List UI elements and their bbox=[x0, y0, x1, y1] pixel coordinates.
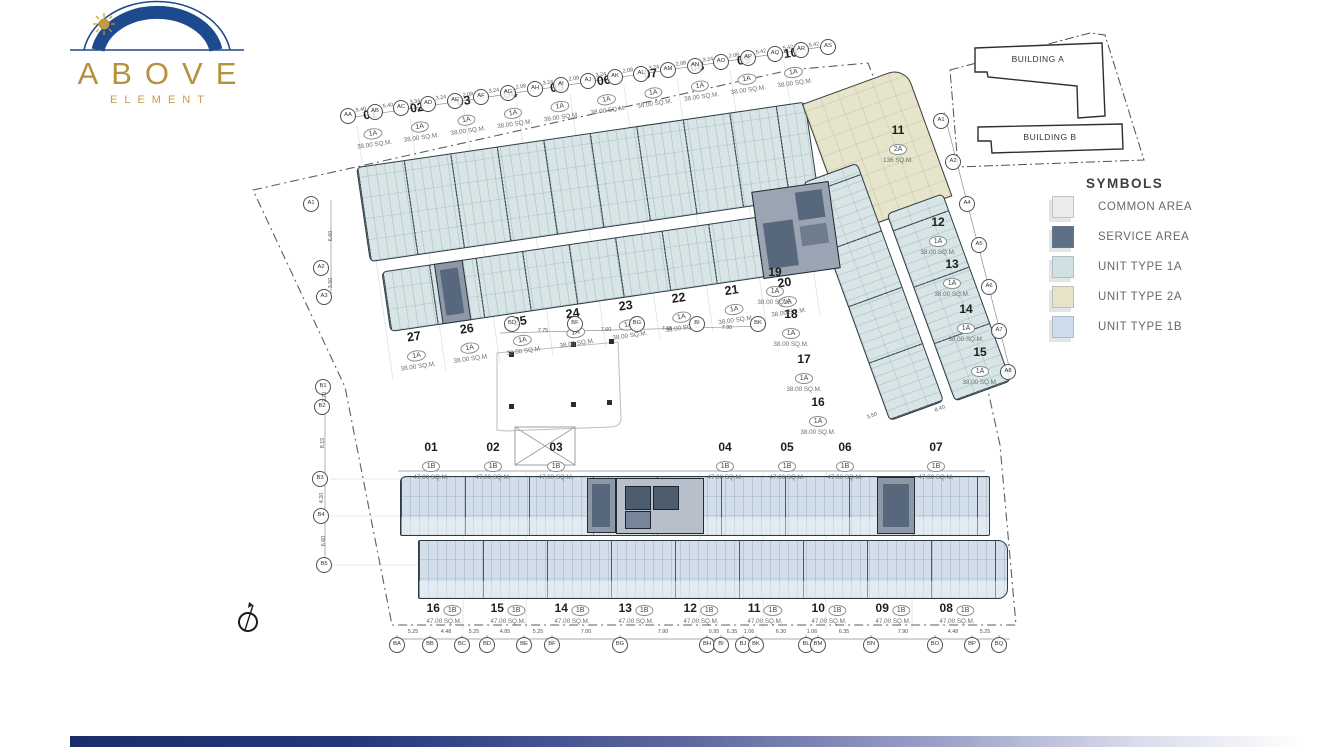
grid-bubble: BO bbox=[927, 637, 943, 653]
dimension-value: 3.50 bbox=[328, 278, 334, 289]
unit-area: 47.00 SQ.M. bbox=[467, 474, 519, 481]
dimension-value: 2.70 bbox=[322, 392, 328, 403]
grid-bubble: BA bbox=[389, 637, 405, 653]
grid-bubble: A3 bbox=[316, 289, 332, 305]
grid-bubble: AS bbox=[820, 39, 836, 55]
unit-type-badge: 1A bbox=[724, 303, 744, 317]
unit-label: 06 1B 47.00 SQ.M. bbox=[819, 441, 871, 481]
unit-label: 25 1A 38.00 SQ.M. bbox=[492, 311, 552, 366]
unit-type-badge: 1B bbox=[422, 461, 441, 472]
grid-bubble: A2 bbox=[945, 154, 961, 170]
unit-label: 19 1A 38.00 SQ.M. bbox=[749, 266, 801, 306]
dimension-value: 0.95 bbox=[709, 629, 720, 635]
legend-item-label: COMMON AREA bbox=[1098, 201, 1192, 213]
unit-number: 13 bbox=[619, 601, 632, 615]
grid-bubble: BG bbox=[612, 637, 628, 653]
dimension-value: 7.90 bbox=[722, 325, 733, 331]
unit-type-badge: 1A bbox=[410, 120, 430, 134]
unit-area: 38.00 SQ.M. bbox=[792, 429, 844, 436]
unit-label: 101B 47.00 SQ.M. bbox=[811, 599, 846, 625]
unit-number: 12 bbox=[684, 601, 697, 615]
grid-bubble: AB bbox=[367, 104, 383, 120]
grid-bubble: A5 bbox=[971, 237, 987, 253]
unit-type-badge: 1A bbox=[809, 416, 828, 427]
unit-area: 47.00 SQ.M. bbox=[811, 618, 846, 625]
unit-type-badge: 1B bbox=[716, 461, 735, 472]
unit-area: 47.00 SQ.M. bbox=[761, 474, 813, 481]
dimension-value: 4.85 bbox=[500, 629, 511, 635]
grid-bubble: A6 bbox=[981, 279, 997, 295]
unit-number: 01 bbox=[405, 441, 457, 454]
unit-area: 47.00 SQ.M. bbox=[939, 618, 974, 625]
grid-bubble: BM bbox=[810, 637, 826, 653]
unit-type-badge: 1A bbox=[929, 236, 948, 247]
stair-core bbox=[587, 478, 616, 533]
unit-label: 081B 47.00 SQ.M. bbox=[939, 599, 974, 625]
unit-label: 141B 47.00 SQ.M. bbox=[554, 599, 589, 625]
grid-bubble: BC bbox=[454, 637, 470, 653]
unit-area: 47.00 SQ.M. bbox=[426, 618, 461, 625]
grid-bubble: AR bbox=[793, 42, 809, 58]
key-plan-building-a-label: BUILDING A bbox=[1012, 54, 1065, 64]
unit-number: 16 bbox=[792, 396, 844, 409]
symbols-legend: SYMBOLS COMMON AREA SERVICE AREA UNIT TY… bbox=[1050, 176, 1280, 341]
unit-area: 38.00 SQ.M. bbox=[912, 249, 964, 256]
unit-number: 07 bbox=[910, 441, 962, 454]
unit-type-badge: 1B bbox=[836, 461, 855, 472]
legend-item-label: UNIT TYPE 2A bbox=[1098, 291, 1182, 303]
unit-label: 131B 47.00 SQ.M. bbox=[618, 599, 653, 625]
grid-bubble: AO bbox=[713, 54, 729, 70]
grid-bubble: A7 bbox=[991, 323, 1007, 339]
unit-type-badge: 1B bbox=[828, 605, 847, 616]
brand-logo: ABOVE ELEMENT bbox=[62, 0, 252, 105]
stair-core bbox=[434, 260, 472, 325]
grid-bubble: A8 bbox=[1000, 364, 1016, 380]
unit-number: 06 bbox=[819, 441, 871, 454]
grid-bubble: BG bbox=[629, 316, 645, 332]
footer-gradient-bar bbox=[70, 736, 1342, 747]
grid-bubble: AM bbox=[660, 62, 676, 78]
brand-name: ABOVE bbox=[62, 56, 252, 92]
unit-label: 18 1A 38.00 SQ.M. bbox=[765, 308, 817, 348]
grid-bubble: AK bbox=[607, 69, 623, 85]
legend-swatch-icon bbox=[1052, 196, 1074, 218]
unit-area: 47.00 SQ.M. bbox=[490, 618, 525, 625]
unit-number: 13 bbox=[926, 258, 978, 271]
unit-type-badge: 1A bbox=[957, 323, 976, 334]
unit-number: 03 bbox=[530, 441, 582, 454]
grid-bubble: BN bbox=[863, 637, 879, 653]
unit-number: 19 bbox=[749, 266, 801, 279]
legend-item-label: UNIT TYPE 1A bbox=[1098, 261, 1182, 273]
key-plan: BUILDING A BUILDING B bbox=[930, 28, 1158, 172]
unit-label: 111B 47.00 SQ.M. bbox=[747, 599, 782, 625]
unit-type-badge: 1A bbox=[782, 328, 801, 339]
unit-number: 15 bbox=[491, 601, 504, 615]
unit-type-badge: 1B bbox=[547, 461, 566, 472]
grid-bubble: AC bbox=[393, 100, 409, 116]
unit-number: 14 bbox=[555, 601, 568, 615]
dimension-value: 1.06 bbox=[807, 629, 818, 635]
unit-area: 38.00 SQ.M. bbox=[778, 386, 830, 393]
unit-type-badge: 1A bbox=[766, 286, 785, 297]
unit-type-badge: 1A bbox=[597, 93, 617, 107]
unit-type-badge: 1A bbox=[643, 86, 663, 100]
grid-bubble: BP bbox=[964, 637, 980, 653]
unit-type-badge: 2A bbox=[889, 144, 908, 155]
grid-bubble: AJ bbox=[580, 73, 596, 89]
grid-bubble: A2 bbox=[313, 260, 329, 276]
unit-area: 136 SQ.M. bbox=[872, 157, 924, 164]
legend-item: SERVICE AREA bbox=[1050, 222, 1280, 251]
legend-swatch-icon bbox=[1052, 226, 1074, 248]
grid-bubble: BB bbox=[422, 637, 438, 653]
grid-bubble: BE bbox=[516, 637, 532, 653]
unit-label: 04 1B 47.00 SQ.M. bbox=[699, 441, 751, 481]
unit-type-badge: 1A bbox=[737, 73, 757, 87]
unit-type-badge: 1B bbox=[443, 605, 462, 616]
grid-bubble: B5 bbox=[316, 557, 332, 573]
unit-label: 12 1A 38.00 SQ.M. bbox=[912, 216, 964, 256]
legend-swatch-icon bbox=[1052, 256, 1074, 278]
unit-area: 47.00 SQ.M. bbox=[618, 618, 653, 625]
unit-label: 27 1A 38.00 SQ.M. bbox=[387, 327, 447, 382]
dimension-value: 6.60 bbox=[321, 536, 327, 547]
unit-type-badge: 1B bbox=[764, 605, 783, 616]
unit-label: 15 1A 38.00 SQ.M. bbox=[954, 346, 1006, 386]
unit-area: 38.00 SQ.M. bbox=[954, 379, 1006, 386]
lower-building-bottom-bar bbox=[418, 540, 1008, 599]
dimension-value: 7.75 bbox=[538, 328, 549, 334]
key-plan-building-b-label: BUILDING B bbox=[1023, 132, 1076, 142]
unit-area: 38.00 SQ.M. bbox=[749, 299, 801, 306]
unit-type-badge: 1B bbox=[892, 605, 911, 616]
legend-items: COMMON AREA SERVICE AREA UNIT TYPE 1A UN… bbox=[1050, 192, 1280, 341]
grid-bubble: BI bbox=[713, 637, 729, 653]
grid-bubble: AQ bbox=[767, 46, 783, 62]
dimension-value: 8.15 bbox=[320, 438, 326, 449]
legend-item: UNIT TYPE 2A bbox=[1050, 282, 1280, 311]
unit-type-badge: 1A bbox=[460, 341, 480, 355]
dimension-value: 7.65 bbox=[662, 326, 673, 332]
unit-number: 11 bbox=[748, 601, 761, 615]
grid-bubble: A1 bbox=[303, 196, 319, 212]
unit-number: 14 bbox=[940, 303, 992, 316]
unit-number: 15 bbox=[954, 346, 1006, 359]
unit-type-badge: 1B bbox=[635, 605, 654, 616]
unit-area: 38.00 SQ.M. bbox=[926, 291, 978, 298]
legend-item: UNIT TYPE 1B bbox=[1050, 312, 1280, 341]
grid-bubble: BD bbox=[504, 316, 520, 332]
unit-number: 08 bbox=[940, 601, 953, 615]
unit-label: 26 1A 38.00 SQ.M. bbox=[439, 319, 499, 374]
unit-number: 18 bbox=[765, 308, 817, 321]
legend-item: UNIT TYPE 1A bbox=[1050, 252, 1280, 281]
grid-bubble: B4 bbox=[313, 508, 329, 524]
unit-area: 38.00 SQ.M. bbox=[940, 336, 992, 343]
unit-type-badge: 1A bbox=[363, 127, 383, 141]
grid-bubble: AG bbox=[500, 85, 516, 101]
grid-bubble: BD bbox=[479, 637, 495, 653]
unit-area: 47.00 SQ.M. bbox=[554, 618, 589, 625]
dimension-value: 6.60 bbox=[328, 231, 334, 242]
unit-type-badge: 1B bbox=[700, 605, 719, 616]
unit-area: 47.00 SQ.M. bbox=[875, 618, 910, 625]
unit-number: 16 bbox=[427, 601, 440, 615]
unit-type-badge: 1B bbox=[571, 605, 590, 616]
grid-bubble: AN bbox=[687, 58, 703, 74]
unit-label: 161B 47.00 SQ.M. bbox=[426, 599, 461, 625]
unit-label: 151B 47.00 SQ.M. bbox=[490, 599, 525, 625]
logo-arch-icon bbox=[62, 0, 252, 54]
unit-type-badge: 1B bbox=[507, 605, 526, 616]
unit-area: 47.00 SQ.M. bbox=[910, 474, 962, 481]
unit-area: 38.00 SQ.M. bbox=[765, 341, 817, 348]
unit-type-badge: 1A bbox=[690, 79, 710, 93]
grid-bubble: BF bbox=[544, 637, 560, 653]
unit-type-badge: 1A bbox=[407, 349, 427, 363]
unit-type-badge: 1A bbox=[971, 366, 990, 377]
dimension-value: 6.35 bbox=[839, 629, 850, 635]
unit-label: 14 1A 38.00 SQ.M. bbox=[940, 303, 992, 343]
grid-bubble: BF bbox=[567, 316, 583, 332]
unit-label: 13 1A 38.00 SQ.M. bbox=[926, 258, 978, 298]
dimension-value: 5.25 bbox=[408, 629, 419, 635]
dimension-value: 4.48 bbox=[441, 629, 452, 635]
unit-type-badge: 1B bbox=[484, 461, 503, 472]
brand-subtitle: ELEMENT bbox=[62, 94, 252, 106]
unit-number: 11 bbox=[872, 124, 924, 137]
unit-label: 22 1A 38.00 SQ.M. bbox=[651, 288, 711, 343]
service-core-cluster bbox=[751, 181, 840, 279]
grid-bubble: BI bbox=[689, 316, 705, 332]
unit-area: 47.00 SQ.M. bbox=[699, 474, 751, 481]
unit-label: 05 1B 47.00 SQ.M. bbox=[761, 441, 813, 481]
unit-area: 47.00 SQ.M. bbox=[405, 474, 457, 481]
legend-item-label: UNIT TYPE 1B bbox=[1098, 321, 1182, 333]
unit-area: 47.00 SQ.M. bbox=[530, 474, 582, 481]
dimension-value: 6.35 bbox=[727, 629, 738, 635]
unit-number: 09 bbox=[876, 601, 889, 615]
unit-type-badge: 1B bbox=[927, 461, 946, 472]
dimension-value: 1.06 bbox=[744, 629, 755, 635]
unit-type-badge: 1A bbox=[513, 334, 533, 348]
dimension-value: 5.25 bbox=[980, 629, 991, 635]
dimension-value: 7.00 bbox=[581, 629, 592, 635]
grid-bubble: AF bbox=[473, 89, 489, 105]
unit-type-badge: 1B bbox=[956, 605, 975, 616]
legend-item-label: SERVICE AREA bbox=[1098, 231, 1189, 243]
unit-label: 16 1A 38.00 SQ.M. bbox=[792, 396, 844, 436]
unit-number: 05 bbox=[761, 441, 813, 454]
dimension-value: 7.60 bbox=[601, 327, 612, 333]
unit-number: 12 bbox=[912, 216, 964, 229]
unit-label: 07 1B 47.00 SQ.M. bbox=[910, 441, 962, 481]
dimension-value: 7.90 bbox=[898, 629, 909, 635]
unit-11-label: 11 2A 136 SQ.M. bbox=[872, 124, 924, 164]
unit-area: 47.00 SQ.M. bbox=[747, 618, 782, 625]
dimension-value: 7.90 bbox=[658, 629, 669, 635]
legend-title: SYMBOLS bbox=[1086, 176, 1280, 191]
unit-number: 04 bbox=[699, 441, 751, 454]
grid-bubble: AI bbox=[553, 77, 569, 93]
stair-core bbox=[877, 477, 915, 534]
north-arrow-icon bbox=[239, 602, 257, 631]
unit-area: 47.00 SQ.M. bbox=[819, 474, 871, 481]
grid-bubble: BQ bbox=[991, 637, 1007, 653]
unit-label: 121B 47.00 SQ.M. bbox=[683, 599, 718, 625]
grid-bubble: AP bbox=[740, 50, 756, 66]
unit-type-badge: 1A bbox=[550, 100, 570, 114]
dimension-value: 4.20 bbox=[319, 493, 325, 504]
unit-label: 091B 47.00 SQ.M. bbox=[875, 599, 910, 625]
grid-bubble: AA bbox=[340, 108, 356, 124]
unit-number: 10 bbox=[812, 601, 825, 615]
unit-label: 17 1A 38.00 SQ.M. bbox=[778, 353, 830, 393]
unit-number: 02 bbox=[467, 441, 519, 454]
unit-number: 17 bbox=[778, 353, 830, 366]
grid-bubble: AD bbox=[420, 96, 436, 112]
grid-bubble: A4 bbox=[959, 196, 975, 212]
dimension-value: 6.30 bbox=[776, 629, 787, 635]
legend-item: COMMON AREA bbox=[1050, 192, 1280, 221]
grid-bubble: BK bbox=[748, 637, 764, 653]
legend-swatch-icon bbox=[1052, 286, 1074, 308]
unit-type-badge: 1A bbox=[456, 113, 476, 127]
grid-bubble: B3 bbox=[312, 471, 328, 487]
unit-type-badge: 1A bbox=[795, 373, 814, 384]
elevator-core bbox=[616, 478, 704, 534]
grid-bubble: A1 bbox=[933, 113, 949, 129]
legend-swatch-icon bbox=[1052, 316, 1074, 338]
floor-plan-page: ABOVE ELEMENT BUILDING A BUILDING B SYMB… bbox=[0, 0, 1342, 754]
unit-type-badge: 1A bbox=[783, 66, 803, 80]
unit-label: 03 1B 47.00 SQ.M. bbox=[530, 441, 582, 481]
grid-bubble: AE bbox=[447, 93, 463, 109]
grid-bubble: BK bbox=[750, 316, 766, 332]
unit-type-badge: 1B bbox=[778, 461, 797, 472]
unit-area: 47.00 SQ.M. bbox=[683, 618, 718, 625]
unit-type-badge: 1A bbox=[503, 107, 523, 121]
dimension-value: 5.25 bbox=[533, 629, 544, 635]
unit-label: 01 1B 47.00 SQ.M. bbox=[405, 441, 457, 481]
unit-type-badge: 1A bbox=[943, 278, 962, 289]
dimension-value: 4.48 bbox=[948, 629, 959, 635]
lower-building-top-bar bbox=[400, 476, 990, 536]
unit-label: 02 1B 47.00 SQ.M. bbox=[467, 441, 519, 481]
grid-bubble: AL bbox=[633, 66, 649, 82]
dimension-value: 5.25 bbox=[469, 629, 480, 635]
grid-bubble: AH bbox=[527, 81, 543, 97]
